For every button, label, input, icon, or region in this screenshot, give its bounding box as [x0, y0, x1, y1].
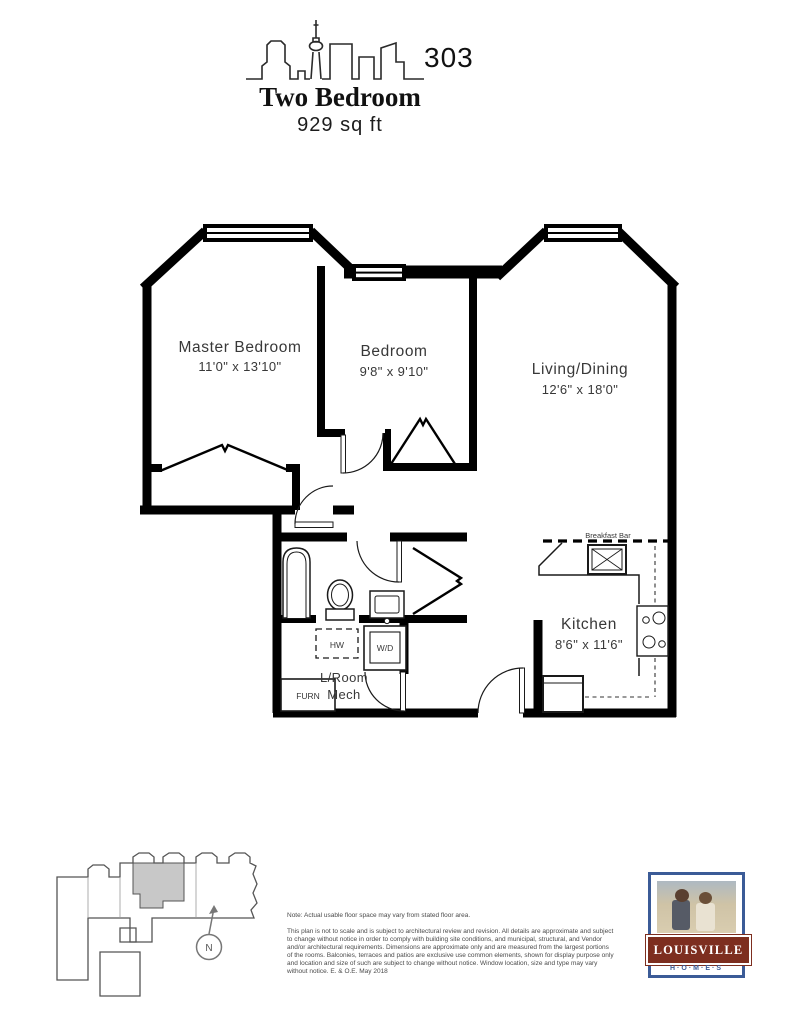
toilet-flush [384, 618, 389, 623]
window-master [203, 224, 313, 242]
bath-sink-pedestal [326, 609, 354, 620]
laundry-door-leaf [401, 672, 406, 711]
label-laundry-line1: L/Room [320, 670, 368, 685]
bathroom-door-arc [357, 541, 399, 582]
bath-sink-basin [332, 584, 349, 606]
label-living-dining: Living/Dining [532, 361, 629, 378]
label-laundry-line2: Mech [327, 687, 360, 702]
fridge-icon [543, 676, 583, 712]
hall-closet-bifold [413, 548, 461, 614]
bathtub-inner [287, 552, 306, 618]
master-closet-bifold [160, 445, 290, 471]
master-door-arc [295, 486, 333, 524]
label-master-bedroom: Master Bedroom [179, 339, 302, 356]
footer-note: Note: Actual usable floor space may vary… [287, 912, 615, 920]
bedroom-door-leaf [341, 435, 346, 473]
label-hw: HW [330, 640, 344, 650]
entry-door-leaf [520, 668, 525, 713]
logo-banner: LOUISVILLE [646, 935, 751, 965]
keyplan-lower-wing [100, 928, 140, 996]
window-bedroom [352, 264, 406, 281]
logo-photo [657, 881, 736, 933]
label-kitchen: Kitchen [561, 616, 617, 633]
dims-kitchen: 8'6" x 11'6" [555, 637, 623, 652]
dims-master-bedroom: 11'0" x 13'10" [198, 359, 281, 374]
keyplan-unit-highlight [133, 863, 184, 908]
window-living [544, 224, 622, 242]
logo-brand: LOUISVILLE [654, 943, 744, 958]
floorplan-page: 303 Two Bedroom 929 sq ft [0, 0, 791, 1024]
master-door-leaf [295, 522, 333, 528]
interior-walls [148, 266, 477, 619]
north-label: N [205, 943, 212, 954]
dims-living-dining: 12'6" x 18'0" [542, 382, 619, 397]
label-furn: FURN [296, 691, 320, 701]
label-breakfast-bar: Breakfast Bar [585, 531, 631, 540]
builder-logo: LOUISVILLE H·O·M·E·S [648, 872, 745, 978]
label-wd: W/D [377, 643, 394, 653]
dims-bedroom: 9'8" x 9'10" [360, 364, 429, 379]
toilet-tank [375, 596, 399, 613]
floorplan-drawing: Master Bedroom 11'0" x 13'10" Bedroom 9'… [0, 0, 791, 1024]
bedroom-door-arc [343, 433, 383, 473]
bedroom-closet-bifold [391, 419, 455, 464]
label-bedroom: Bedroom [360, 343, 427, 360]
footer-disclaimer: This plan is not to scale and is subject… [287, 928, 615, 976]
bathroom-door-leaf [397, 541, 402, 582]
entry-door-arc [478, 668, 523, 713]
logo-homes: H·O·M·E·S [651, 965, 742, 972]
keyplan [57, 853, 257, 996]
laundry-door-arc [365, 672, 404, 711]
